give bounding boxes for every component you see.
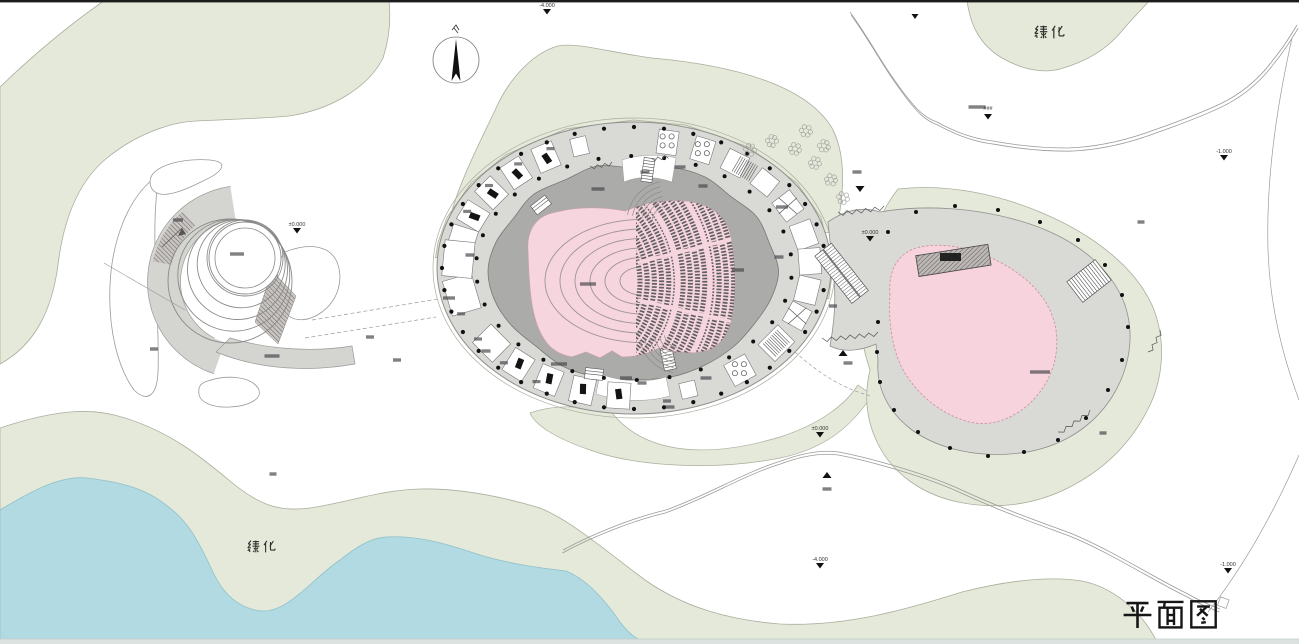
- svg-text:-4.000: -4.000: [539, 3, 555, 9]
- svg-text:-4.000: -4.000: [812, 557, 828, 563]
- svg-text:±0.000: ±0.000: [862, 230, 879, 236]
- svg-text:-1.000: -1.000: [1216, 149, 1232, 155]
- svg-text:±0.000: ±0.000: [812, 426, 829, 432]
- svg-text:±0.000: ±0.000: [289, 222, 306, 228]
- svg-text:-1.000: -1.000: [1220, 562, 1236, 568]
